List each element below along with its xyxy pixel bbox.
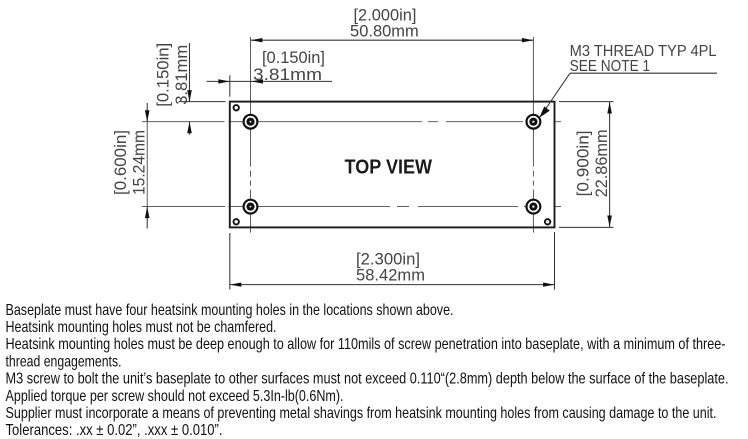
svg-text:15.24mm: 15.24mm xyxy=(130,130,149,195)
svg-text:Tolerances: .xx ± 0.02”, .xxx: Tolerances: .xx ± 0.02”, .xxx ± 0.010”. xyxy=(6,422,223,439)
svg-text:thread engagements.: thread engagements. xyxy=(6,353,122,370)
svg-text:Applied torque per screw shoul: Applied torque per screw should not exce… xyxy=(6,388,344,405)
svg-text:Heatsink mounting holes must b: Heatsink mounting holes must be deep eno… xyxy=(6,336,726,353)
svg-text:[0.900in]: [0.900in] xyxy=(574,130,593,196)
svg-text:M3 screw to bolt the unit’s b: M3 screw to bolt the unit’s baseplate to… xyxy=(6,371,729,388)
svg-text:Baseplate must have four heats: Baseplate must have four heatsink mounti… xyxy=(6,302,454,319)
svg-text:Heatsink mounting holes must n: Heatsink mounting holes must not be cham… xyxy=(6,319,277,336)
svg-text:58.42mm: 58.42mm xyxy=(356,266,425,285)
svg-text:50.80mm: 50.80mm xyxy=(350,22,419,41)
svg-text:TOP VIEW: TOP VIEW xyxy=(345,157,433,179)
svg-text:3.81mm: 3.81mm xyxy=(172,45,191,105)
svg-text:Supplier must incorporate a me: Supplier must incorporate a means of pre… xyxy=(6,405,717,422)
svg-text:3.81mm: 3.81mm xyxy=(253,65,322,84)
svg-text:SEE NOTE 1: SEE NOTE 1 xyxy=(570,58,651,75)
svg-text:[0.150in]: [0.150in] xyxy=(262,48,325,67)
svg-text:22.86mm: 22.86mm xyxy=(592,129,611,197)
svg-text:[0.600in]: [0.600in] xyxy=(111,130,130,195)
svg-text:[0.150in]: [0.150in] xyxy=(154,43,173,107)
